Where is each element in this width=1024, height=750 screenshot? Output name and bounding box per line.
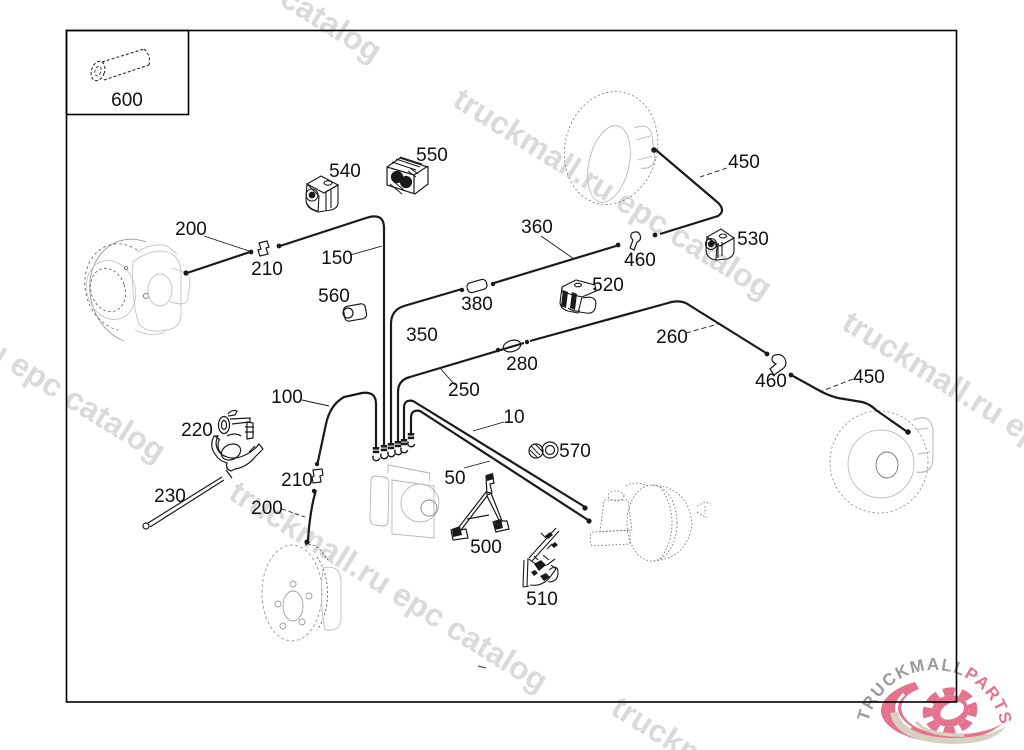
svg-text:550: 550 <box>416 145 448 166</box>
svg-text:540: 540 <box>329 161 361 182</box>
svg-text:210: 210 <box>281 470 313 491</box>
svg-text:360: 360 <box>521 217 553 238</box>
svg-text:460: 460 <box>624 250 656 271</box>
svg-text:200: 200 <box>175 219 207 240</box>
svg-text:350: 350 <box>406 325 438 346</box>
svg-text:truckmall.ru epc catalog: truckmall.ru epc catalog <box>836 303 1024 529</box>
svg-text:520: 520 <box>592 275 624 296</box>
svg-text:200: 200 <box>251 498 283 519</box>
svg-text:truckmall.ru epc catalog: truckmall.ru epc catalog <box>57 0 388 69</box>
svg-text:460: 460 <box>755 371 787 392</box>
svg-text:10: 10 <box>503 407 524 428</box>
svg-text:250: 250 <box>448 380 480 401</box>
svg-text:truckmall.ru epc catalog: truckmall.ru epc catalog <box>0 243 173 469</box>
svg-text:280: 280 <box>506 354 538 375</box>
svg-text:450: 450 <box>853 367 885 388</box>
svg-text:560: 560 <box>318 286 350 307</box>
svg-text:500: 500 <box>470 537 502 558</box>
svg-text:260: 260 <box>656 327 688 348</box>
svg-text:150: 150 <box>321 248 353 269</box>
svg-text:truckmall.ru epc catalog: truckmall.ru epc catalog <box>447 80 778 306</box>
svg-text:570: 570 <box>559 441 591 462</box>
svg-text:450: 450 <box>728 152 760 173</box>
svg-text:510: 510 <box>526 589 558 610</box>
svg-text:220: 220 <box>181 420 213 441</box>
svg-text:380: 380 <box>461 294 493 315</box>
svg-text:230: 230 <box>154 486 186 507</box>
svg-text:50: 50 <box>444 468 465 489</box>
svg-text:210: 210 <box>251 259 283 280</box>
svg-text:100: 100 <box>271 387 303 408</box>
svg-text:530: 530 <box>737 229 769 250</box>
svg-text:600: 600 <box>111 90 143 111</box>
